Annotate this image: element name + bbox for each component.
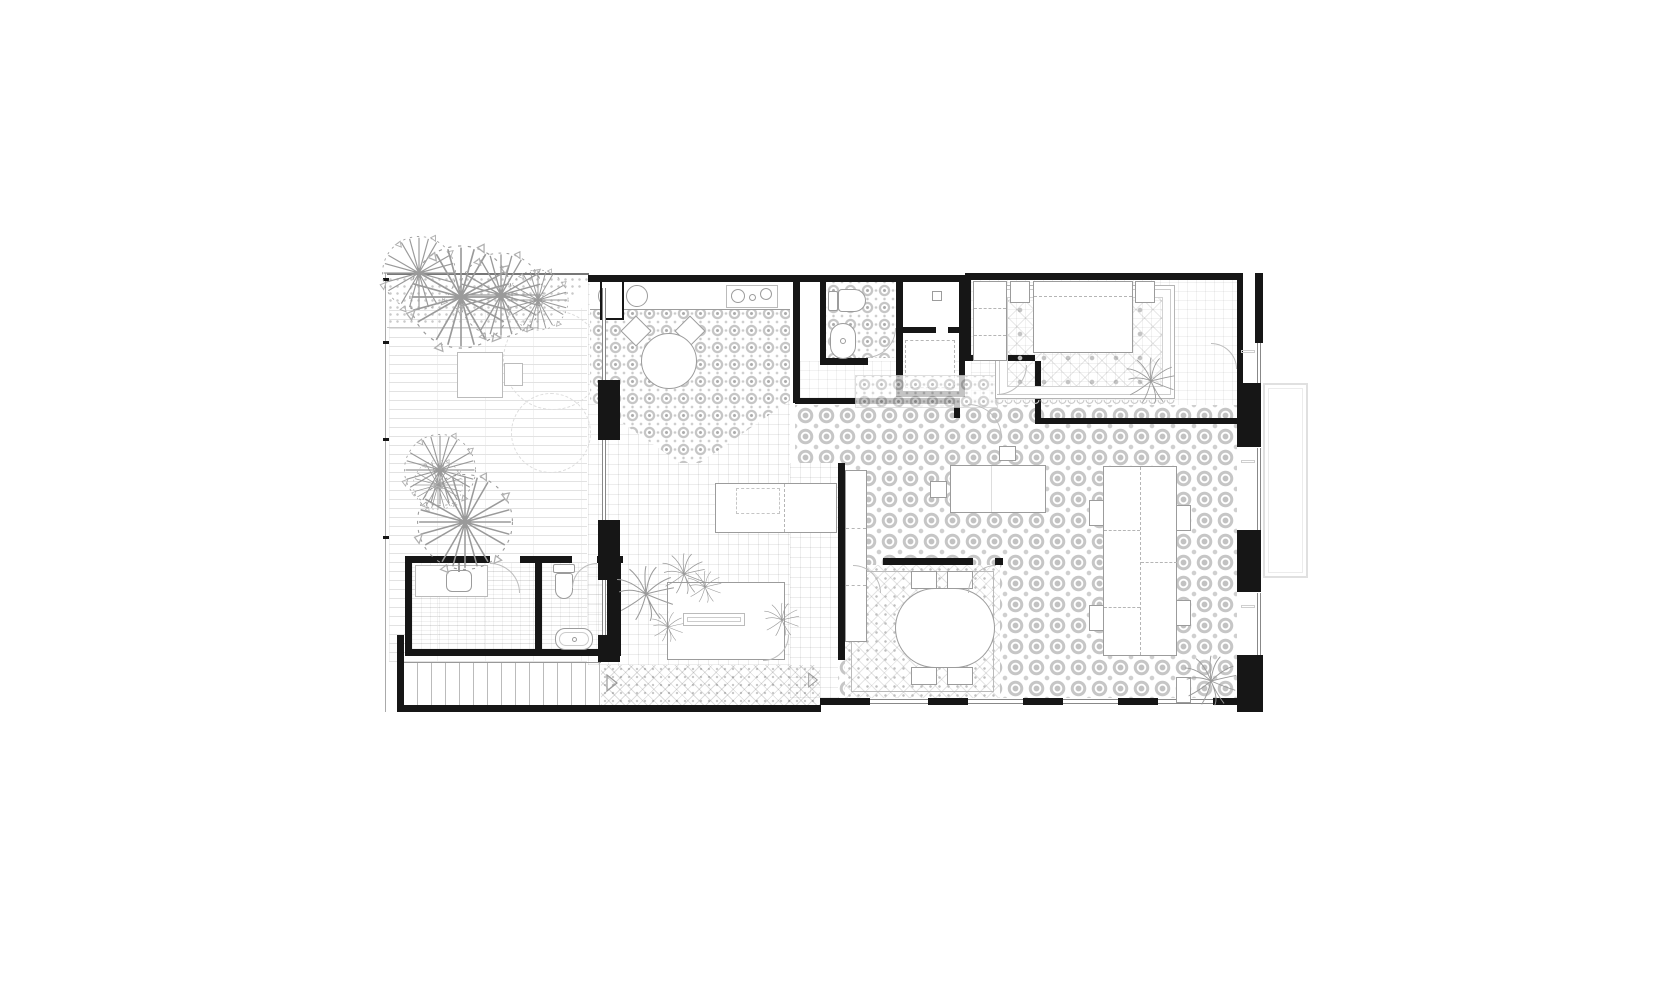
palm-icon [1183,653,1239,709]
small-bathtub [555,628,593,650]
table-division [1104,530,1140,531]
wall-segment [820,275,826,365]
wall-segment [838,463,845,660]
wall-segment [1118,698,1158,705]
table-division [1140,467,1141,655]
planter-trough [683,613,745,626]
wall-segment [793,275,800,403]
wall-segment [397,635,404,710]
window [602,288,606,380]
chair [1176,600,1191,626]
sink-drain [840,338,846,344]
wall-segment [965,273,971,361]
palm-icon [1125,355,1177,407]
wall-pier [598,380,620,440]
window [968,699,1023,704]
floor-plan [383,215,1318,720]
pillow-line [1034,282,1132,297]
wall-segment [1255,273,1263,343]
wall-segment [535,556,542,656]
walkway-paving [601,665,820,705]
toilet [828,291,838,311]
wall-segment [896,327,936,333]
wall-segment [405,556,412,656]
wardrobe-division [974,335,1006,336]
patio-table [457,352,503,398]
cooktop-burner [731,289,745,303]
chair [1176,505,1191,531]
window [602,580,606,635]
table-division [1141,562,1177,563]
dining-chair [911,571,937,589]
cooktop-burner [760,288,772,300]
island-desk [950,465,1046,513]
patio-chair [504,363,523,386]
dining-chair [947,667,973,685]
shower-drain [932,291,942,301]
hall-runner-rug [855,375,998,408]
toilet-bowl [555,573,573,599]
toilet [553,564,575,573]
dining-chair [911,667,937,685]
oval-dining-table [895,588,995,668]
tree-canopy-outline [511,393,591,473]
wall-segment [928,698,968,705]
window [1257,448,1261,530]
wall-segment [793,275,965,282]
window [602,440,606,520]
window [870,699,928,704]
wall-segment [820,358,868,365]
kitchen-sink-basin [626,285,648,307]
wall-segment [588,275,793,282]
plant-icon [763,601,801,639]
wall-segment [820,698,870,705]
side-table [999,446,1016,461]
wall-segment [520,556,572,563]
wall-pilaster [1237,530,1261,592]
wall-segment [883,558,973,565]
toilet-bowl [838,289,866,312]
tub-drain [572,637,577,642]
wardrobe [973,281,1007,361]
table-division [784,484,785,532]
boundary-line [385,273,386,712]
trough-inner-line [687,617,741,622]
window [1257,343,1261,383]
wall-segment [995,558,1003,565]
wall-segment [1035,418,1239,424]
stair-direction-arrow [605,673,619,693]
boundary-tick [383,438,389,441]
nightstand [1010,281,1030,303]
boundary-tick [383,536,389,539]
nightstand [1135,281,1155,303]
table-division [1104,607,1140,608]
bathroom-sink [830,323,856,359]
wall-segment [1255,655,1263,712]
boundary-tick [383,341,389,344]
stool [930,481,947,498]
window-sill [1241,605,1255,608]
plant-icon [687,569,723,605]
window [1257,593,1261,655]
cooktop-burner [749,294,756,301]
tree-icon [413,470,517,574]
wall-segment [397,705,821,712]
plant-icon [651,610,685,644]
walkway-direction-arrow [807,671,819,689]
window [1063,699,1118,704]
balcony-outline [1263,383,1308,578]
chair [1089,500,1104,526]
wall-segment [405,649,621,656]
wall-segment [1023,698,1063,705]
tall-cabinet [845,470,867,642]
passage-table [715,483,837,533]
tree-icon [505,267,571,333]
round-table [641,333,697,389]
chair [1089,605,1104,631]
long-table [1103,466,1177,656]
cabinet-division [846,528,866,529]
wall-pilaster [1237,383,1261,447]
table-sub-rect [736,488,780,514]
window-sill [1241,460,1255,463]
window-sill [1241,350,1255,353]
wall-segment [948,327,965,333]
wall-segment [965,273,1239,280]
double-bed [1033,281,1133,353]
desk-inner-line [991,466,992,512]
wardrobe-division [974,308,1006,309]
